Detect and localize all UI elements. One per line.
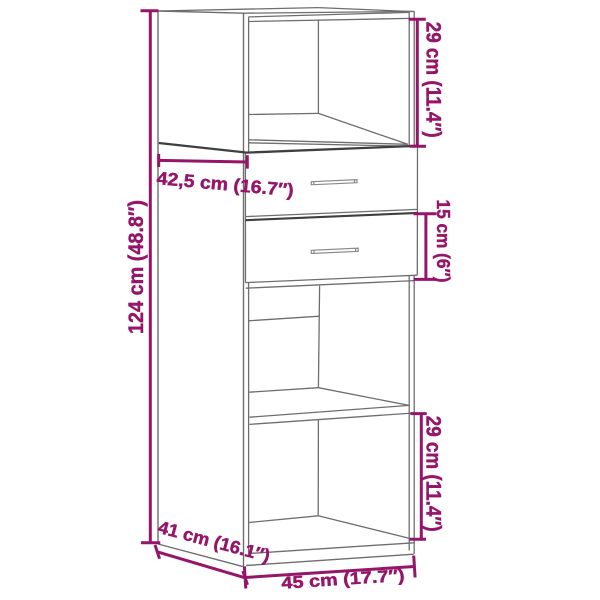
svg-text:15 cm (6″): 15 cm (6″): [433, 200, 453, 283]
svg-text:45 cm (17.7″): 45 cm (17.7″): [281, 566, 405, 593]
svg-text:29 cm (11.4″): 29 cm (11.4″): [422, 416, 445, 532]
svg-text:29 cm (11.4″): 29 cm (11.4″): [422, 22, 445, 138]
svg-text:124 cm (48.8″): 124 cm (48.8″): [124, 200, 148, 334]
